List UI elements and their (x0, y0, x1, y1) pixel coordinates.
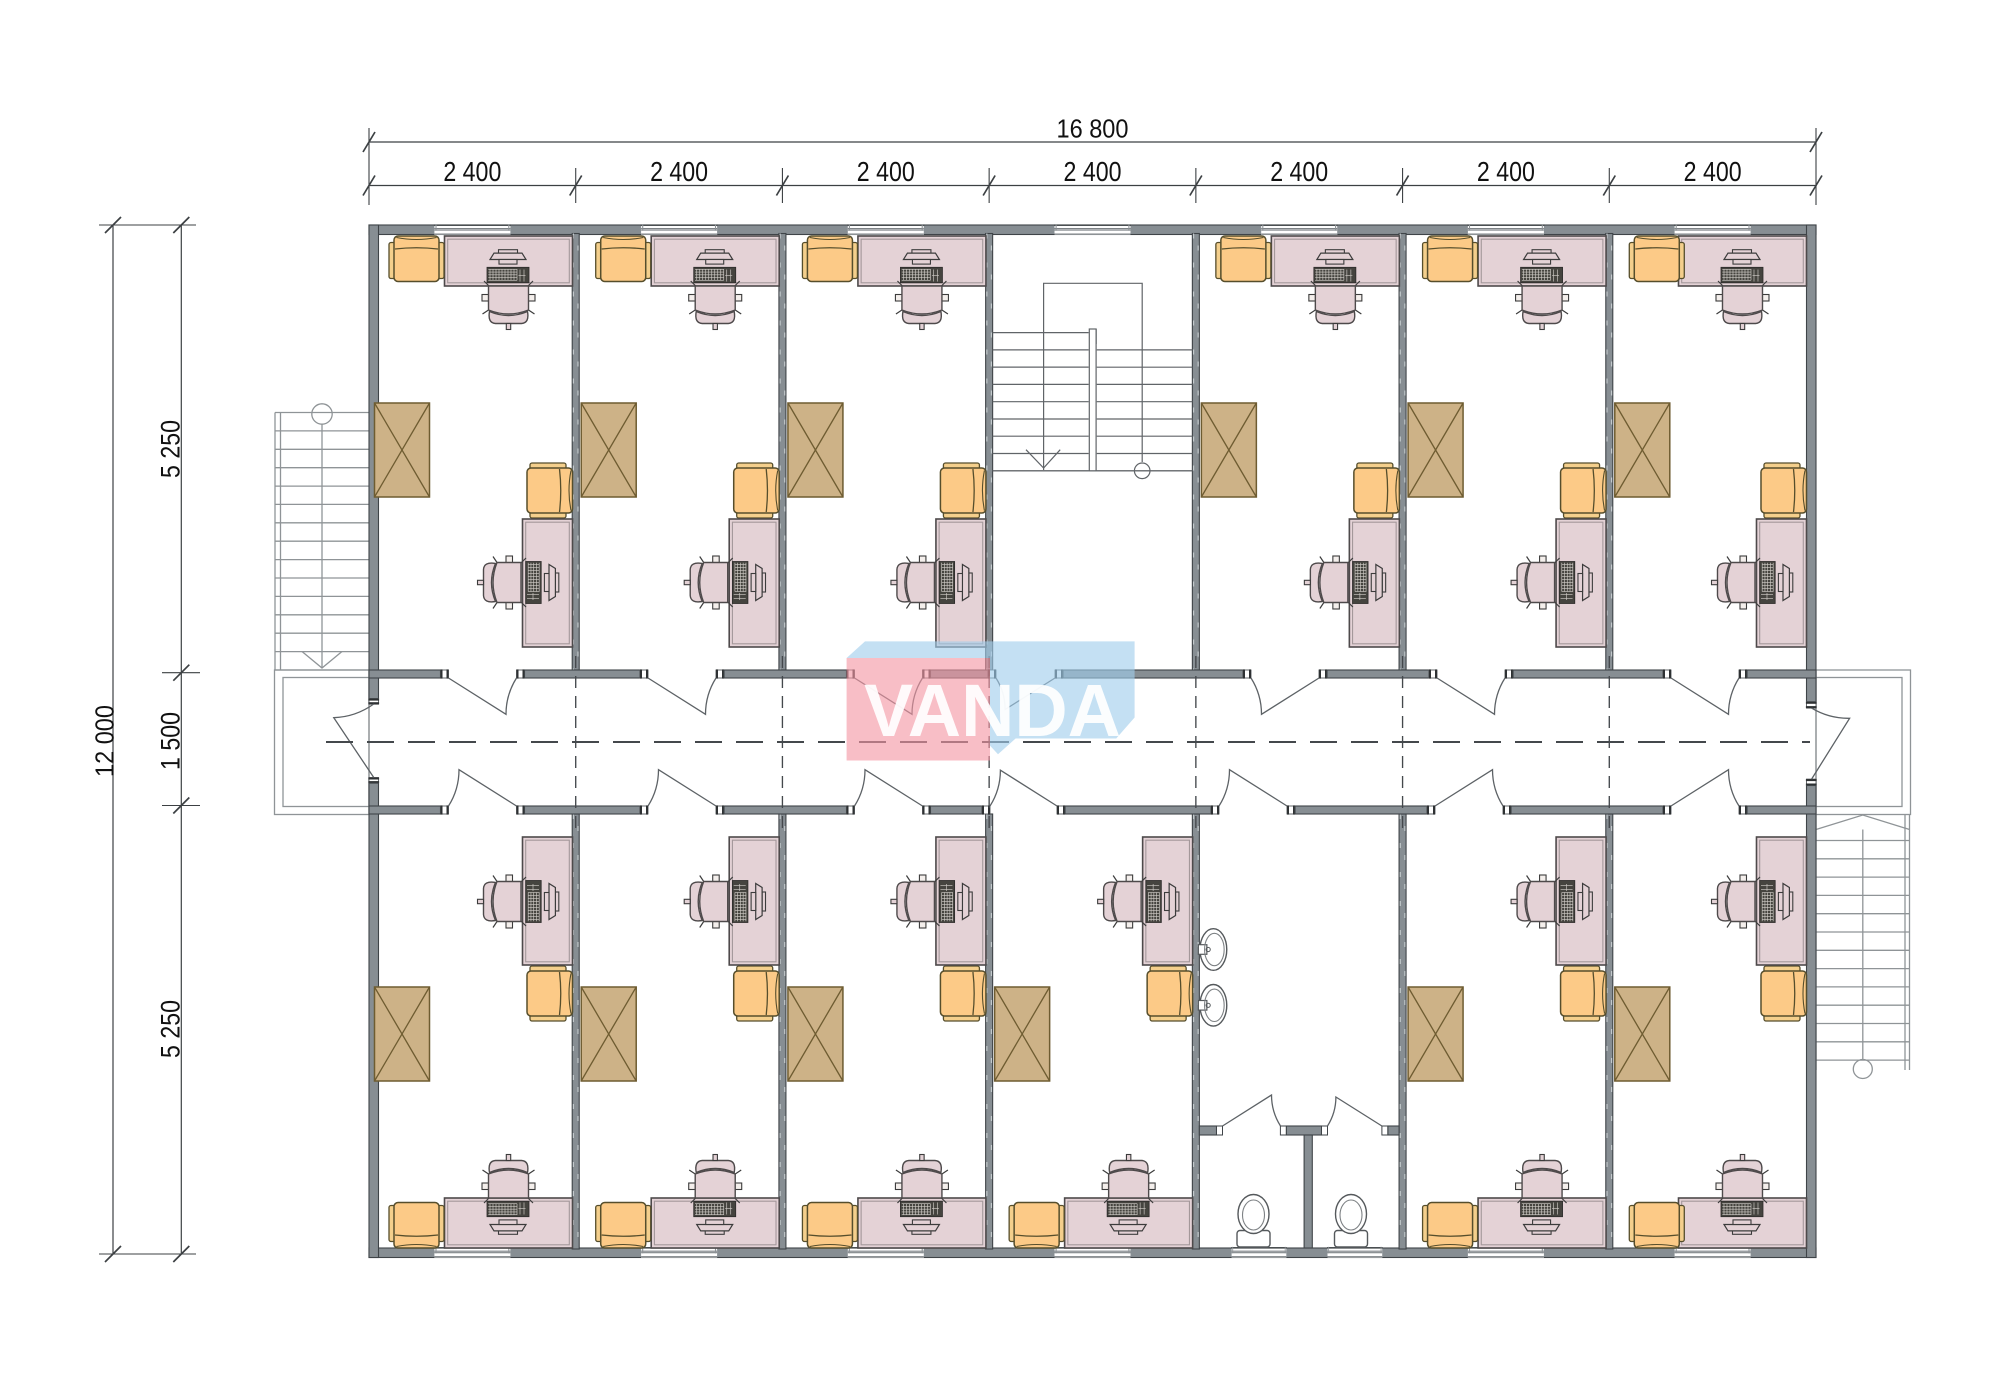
svg-text:2 400: 2 400 (857, 156, 915, 187)
svg-text:5 250: 5 250 (156, 1000, 186, 1058)
svg-text:1 500: 1 500 (156, 712, 186, 770)
svg-text:2 400: 2 400 (1270, 156, 1328, 187)
svg-text:16 800: 16 800 (1057, 114, 1129, 144)
svg-text:VANDA: VANDA (864, 669, 1121, 752)
svg-text:2 400: 2 400 (1477, 156, 1535, 187)
svg-text:12 000: 12 000 (90, 705, 120, 777)
svg-text:2 400: 2 400 (1064, 156, 1122, 187)
svg-text:2 400: 2 400 (650, 156, 708, 187)
svg-text:5 250: 5 250 (156, 420, 186, 478)
svg-text:2 400: 2 400 (1684, 156, 1742, 187)
svg-text:2 400: 2 400 (443, 156, 501, 187)
